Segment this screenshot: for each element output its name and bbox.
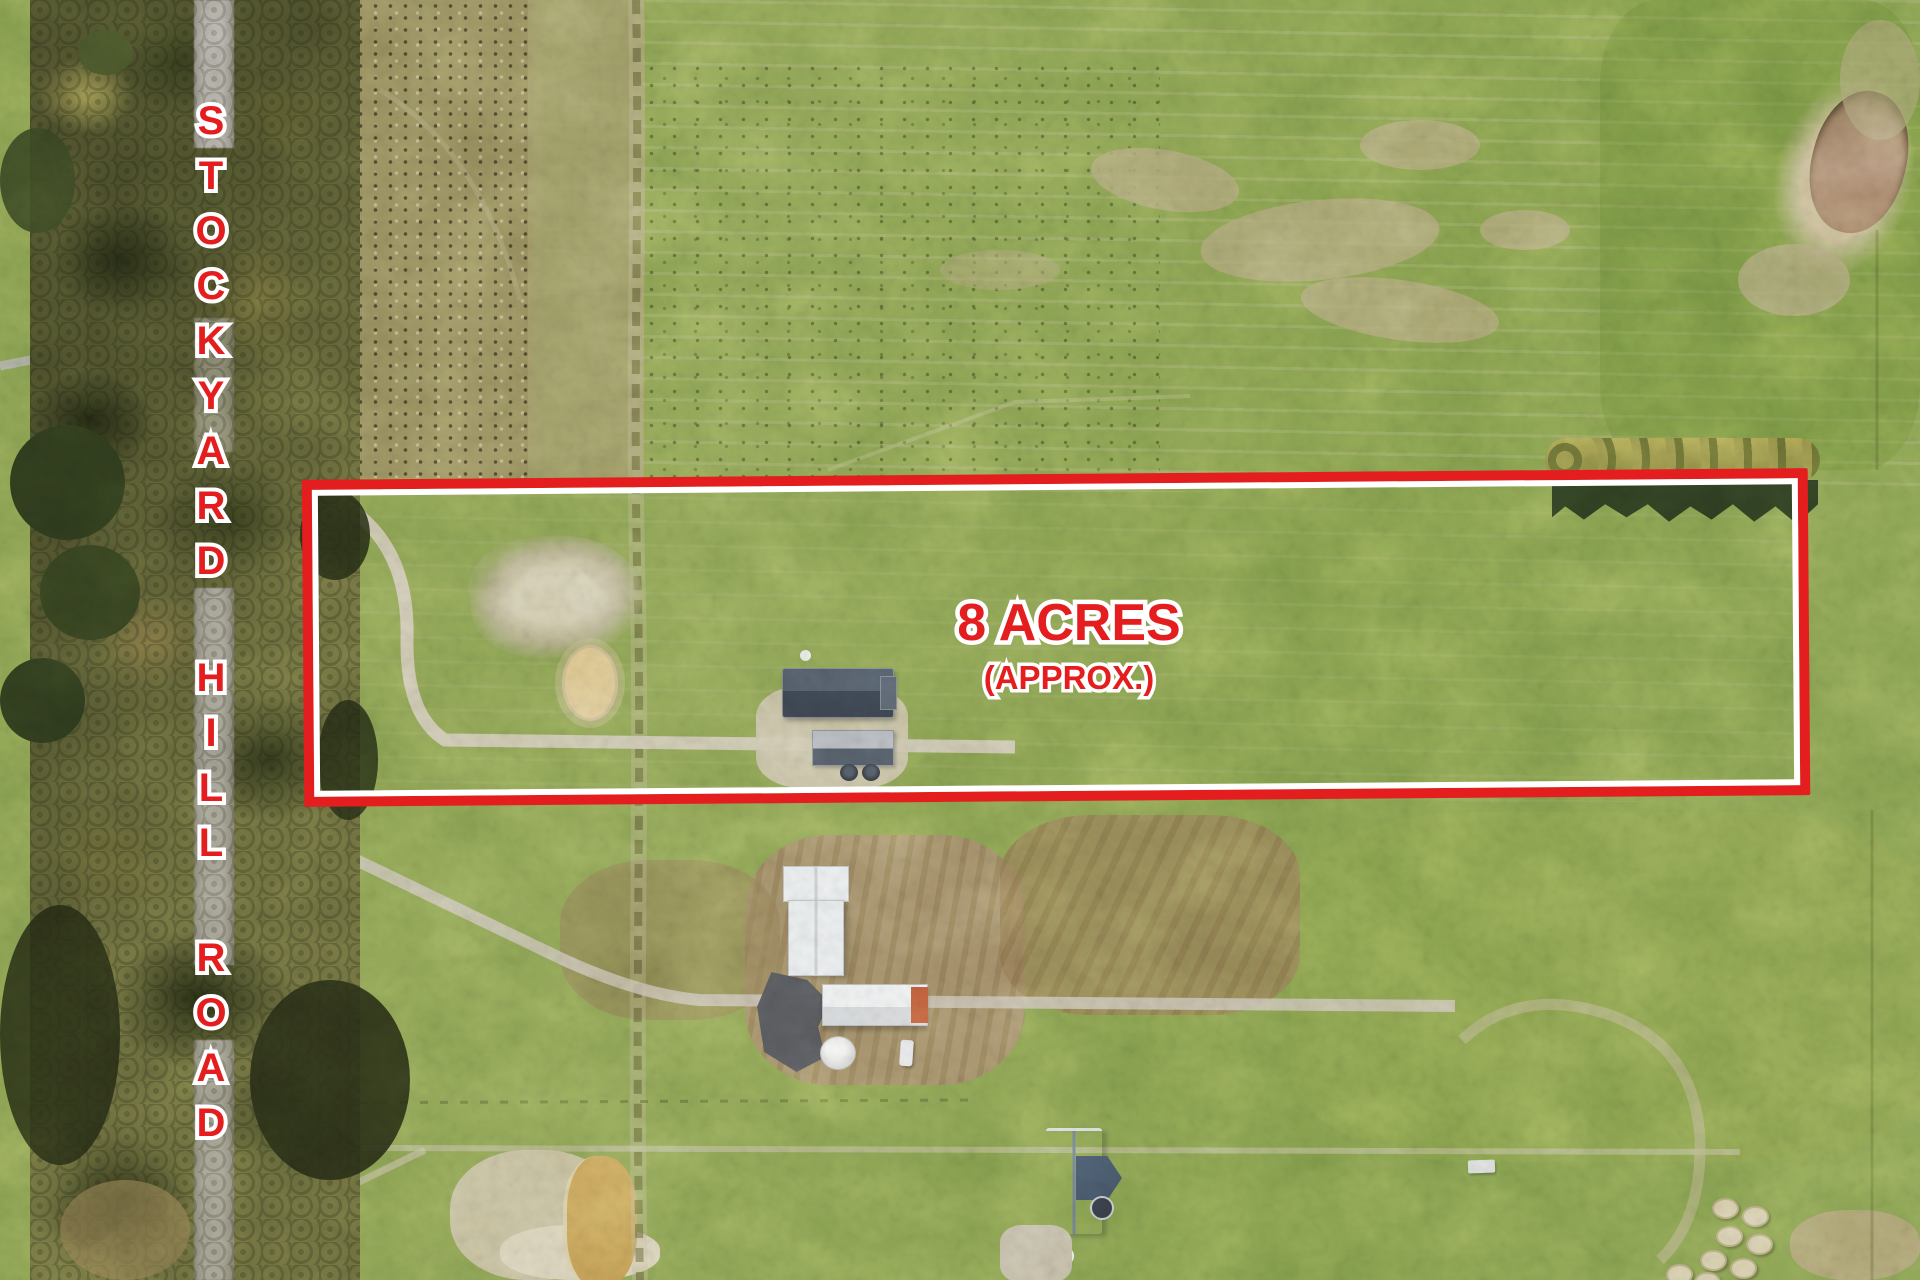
road-word: HHIILLLL — [178, 651, 244, 871]
white-house-wing — [788, 900, 844, 976]
road-letter: LL — [178, 816, 244, 871]
road-word: RROOAADD — [178, 931, 244, 1151]
hay-bale — [1716, 1226, 1743, 1247]
large-tree — [40, 545, 140, 640]
hay-bale — [1700, 1250, 1727, 1271]
round-water-tank — [820, 1036, 856, 1070]
road-letter: II — [178, 706, 244, 761]
area-qualifier-label: (APPROX.)(APPROX.) — [919, 661, 1219, 694]
bottom-house-driveway — [1000, 1225, 1072, 1280]
area-qualifier-text: (APPROX.) — [984, 659, 1155, 696]
parked-van — [899, 1040, 914, 1067]
road-letter: KK — [178, 314, 244, 369]
hay-bale — [1666, 1264, 1693, 1280]
hay-bale — [1730, 1258, 1757, 1279]
white-house-roof — [783, 866, 849, 902]
area-label: 8 ACRES8 ACRES — [919, 597, 1219, 649]
hay-bale — [1746, 1234, 1773, 1255]
road-letter: YY — [178, 369, 244, 424]
road-letter: SS — [178, 94, 244, 149]
road-letter: RR — [178, 931, 244, 986]
tree-cluster — [78, 30, 133, 75]
aerial-property-photo: SSTTOOCCKKYYAARRDD HHIILLLL RROOAADD 8 A… — [0, 0, 1920, 1280]
road-letter: AA — [178, 1041, 244, 1096]
tree-cluster — [250, 980, 410, 1180]
tree-cluster — [0, 658, 85, 743]
road-letter: OO — [178, 986, 244, 1041]
road-letter: RR — [178, 479, 244, 534]
hay-bale — [1742, 1206, 1769, 1227]
road-letter: LL — [178, 761, 244, 816]
road-letter: DD — [178, 534, 244, 589]
dirt-clearing — [60, 1180, 190, 1280]
shed-orange-end — [911, 987, 928, 1023]
road-letter: CC — [178, 259, 244, 314]
road-letter: AA — [178, 424, 244, 479]
road-word: SSTTOOCCKKYYAARRDD — [178, 94, 244, 589]
large-tree — [10, 425, 125, 540]
acreage-label: 8 ACRES8 ACRES (APPROX.)(APPROX.) — [919, 597, 1219, 694]
parked-car — [1468, 1160, 1495, 1174]
tree-cluster — [0, 905, 120, 1165]
tree-cluster — [0, 128, 75, 233]
road-letter: TT — [178, 149, 244, 204]
road-letter: DD — [178, 1096, 244, 1151]
road-name-label: SSTTOOCCKKYYAARRDD HHIILLLL RROOAADD — [178, 0, 244, 1280]
hay-bale — [1712, 1198, 1739, 1219]
road-letter: HH — [178, 651, 244, 706]
area-label-text: 8 ACRES — [957, 594, 1180, 652]
bottom-house-tank — [1090, 1196, 1114, 1220]
road-letter: OO — [178, 204, 244, 259]
